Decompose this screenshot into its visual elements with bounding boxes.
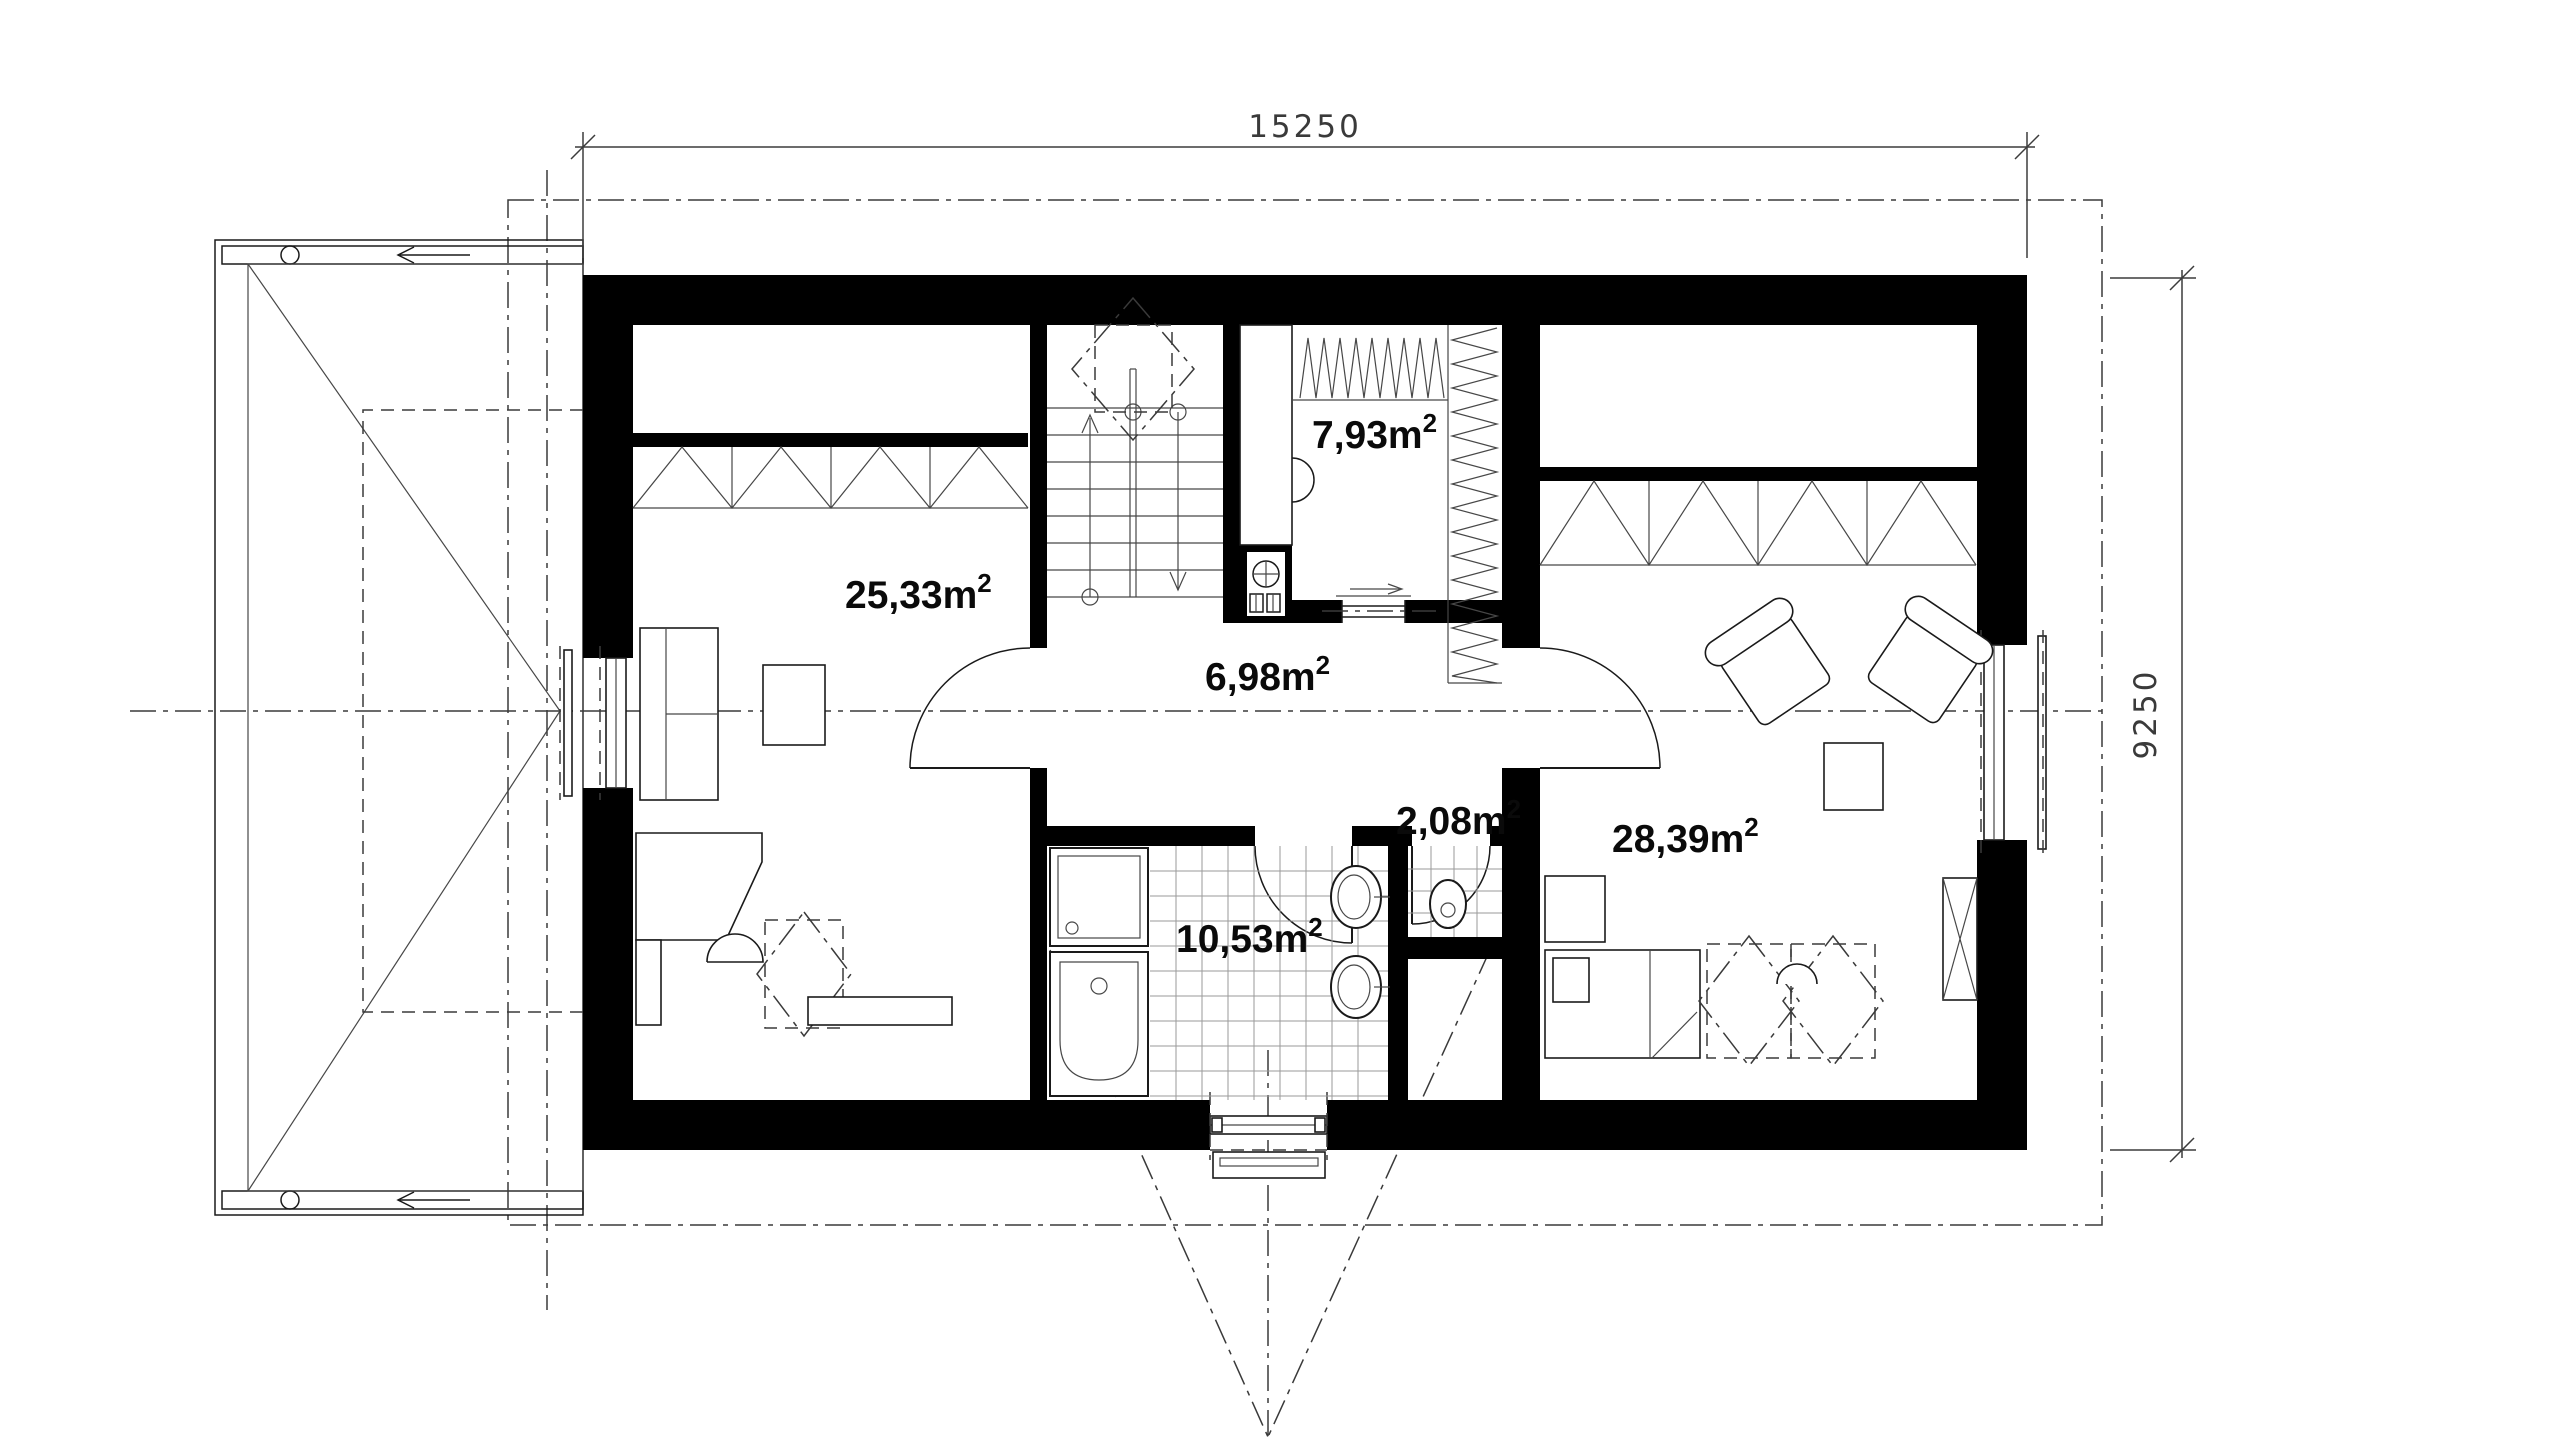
bathroom [1050,846,1390,1100]
door-swing-arc [1540,648,1660,768]
dimension-width-label: 15250 [1248,109,1362,145]
dashed-wardrobe [1791,944,1875,1058]
counter-handle-icon [1292,458,1314,502]
garage-roof-plan [215,240,583,1215]
window-east [1981,630,2046,855]
nightstand [1545,876,1605,942]
bathtub-icon [1050,952,1148,1096]
side-table [1824,743,1883,810]
canopy-hip-right [1268,950,1490,1437]
roof-eave-outline [130,170,2102,1437]
sink-icon [1331,866,1390,928]
bed [1545,950,1700,1058]
room-area-label: 6,98m2 [1205,650,1330,699]
door-bedroom-left [910,648,1030,768]
room-area-label: 7,93m2 [1312,408,1437,457]
room-area-label: 25,33m2 [845,568,992,617]
pillow [1553,958,1589,1002]
desk [636,833,762,940]
room-area-label: 10,53m2 [1176,912,1323,961]
room-area-label: 2,08m2 [1396,794,1521,843]
sink-icon [1331,956,1390,1018]
table [763,665,825,745]
chimney-block [1240,545,1292,623]
wall-lamp-icon [1777,964,1817,984]
wardrobe-zigzag-vertical [1452,328,1497,683]
dimension-height-label: 9250 [2128,669,2164,760]
floor-plan-drawing: 15250 9250 [0,0,2560,1441]
bedroom-left-furniture [636,628,952,1036]
bench [808,997,952,1025]
downspout-top-icon [281,246,299,264]
dimension-right: 9250 [2110,266,2196,1162]
dimension-top: 15250 [571,109,2039,258]
hip-line-top [248,264,560,711]
stairs [1047,298,1223,605]
window-west [560,646,626,800]
floor-plan-page: 15250 9250 [0,0,2560,1441]
corner-desk [1943,878,1977,1000]
clothes-hangers-icon [1300,338,1444,398]
wardrobe-zigzag-right [1540,481,1976,565]
downspout-bottom-icon [281,1191,299,1209]
dashed-wardrobe [1707,944,1791,1058]
knee-wall-right [1540,467,1977,481]
hip-line-bottom [248,711,560,1191]
armchair-icon [1859,591,1998,730]
shower-icon [1050,848,1148,946]
room-labels: 25,33m2 7,93m2 6,98m2 2,08m2 28,39m2 10,… [845,408,1759,961]
toilet-icon [1430,880,1466,928]
door-bedroom-right [1540,648,1660,768]
room-area-label: 28,39m2 [1612,812,1759,861]
wardrobe-counter [1240,325,1292,545]
wardrobe-zigzag-left [633,447,1028,508]
knee-wall-left [633,433,1028,447]
wardrobe-room-fittings [1240,325,1502,683]
floor-tiles [1176,846,1358,1100]
window-sill-south [1213,1152,1325,1178]
door-swing-arc [910,648,1030,768]
